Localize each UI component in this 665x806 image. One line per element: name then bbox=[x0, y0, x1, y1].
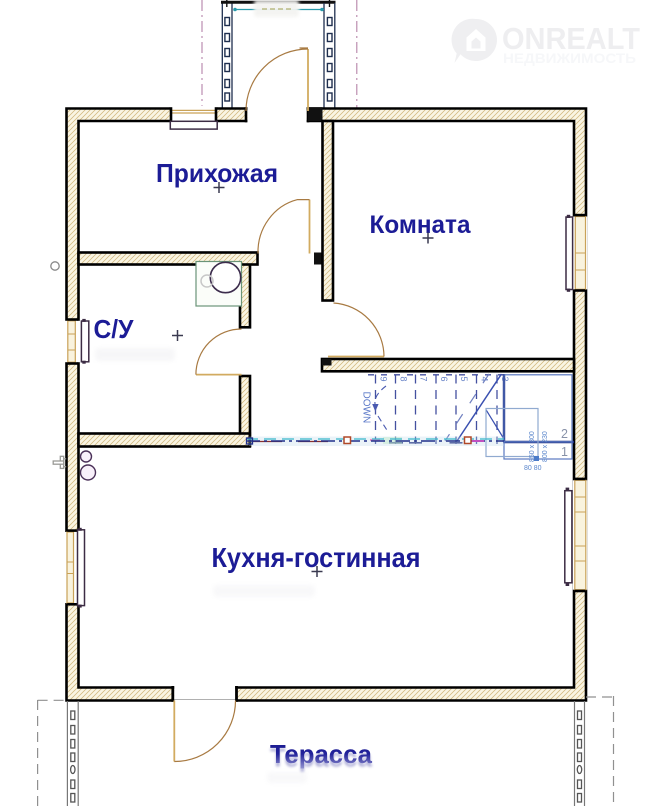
svg-text:7: 7 bbox=[419, 377, 429, 382]
svg-text:Терасса: Терасса bbox=[270, 739, 373, 769]
svg-text:8: 8 bbox=[399, 377, 409, 382]
svg-text:80 80: 80 80 bbox=[524, 465, 542, 472]
svg-text:5: 5 bbox=[459, 377, 469, 382]
svg-text:2: 2 bbox=[561, 427, 568, 441]
svg-text:9: 9 bbox=[379, 377, 389, 382]
svg-text:1: 1 bbox=[561, 445, 568, 459]
svg-text:6: 6 bbox=[439, 377, 449, 382]
svg-text:НЕДВИЖИМОСТЬ: НЕДВИЖИМОСТЬ bbox=[503, 51, 636, 66]
svg-text:DOWN: DOWN bbox=[361, 392, 372, 424]
svg-text:С/У: С/У bbox=[94, 314, 135, 344]
svg-text:800 x 230: 800 x 230 bbox=[542, 431, 549, 462]
svg-text:Прихожая: Прихожая bbox=[156, 158, 278, 188]
svg-text:Комната: Комната bbox=[370, 211, 472, 239]
svg-text:Кухня-гостинная: Кухня-гостинная bbox=[212, 542, 421, 573]
